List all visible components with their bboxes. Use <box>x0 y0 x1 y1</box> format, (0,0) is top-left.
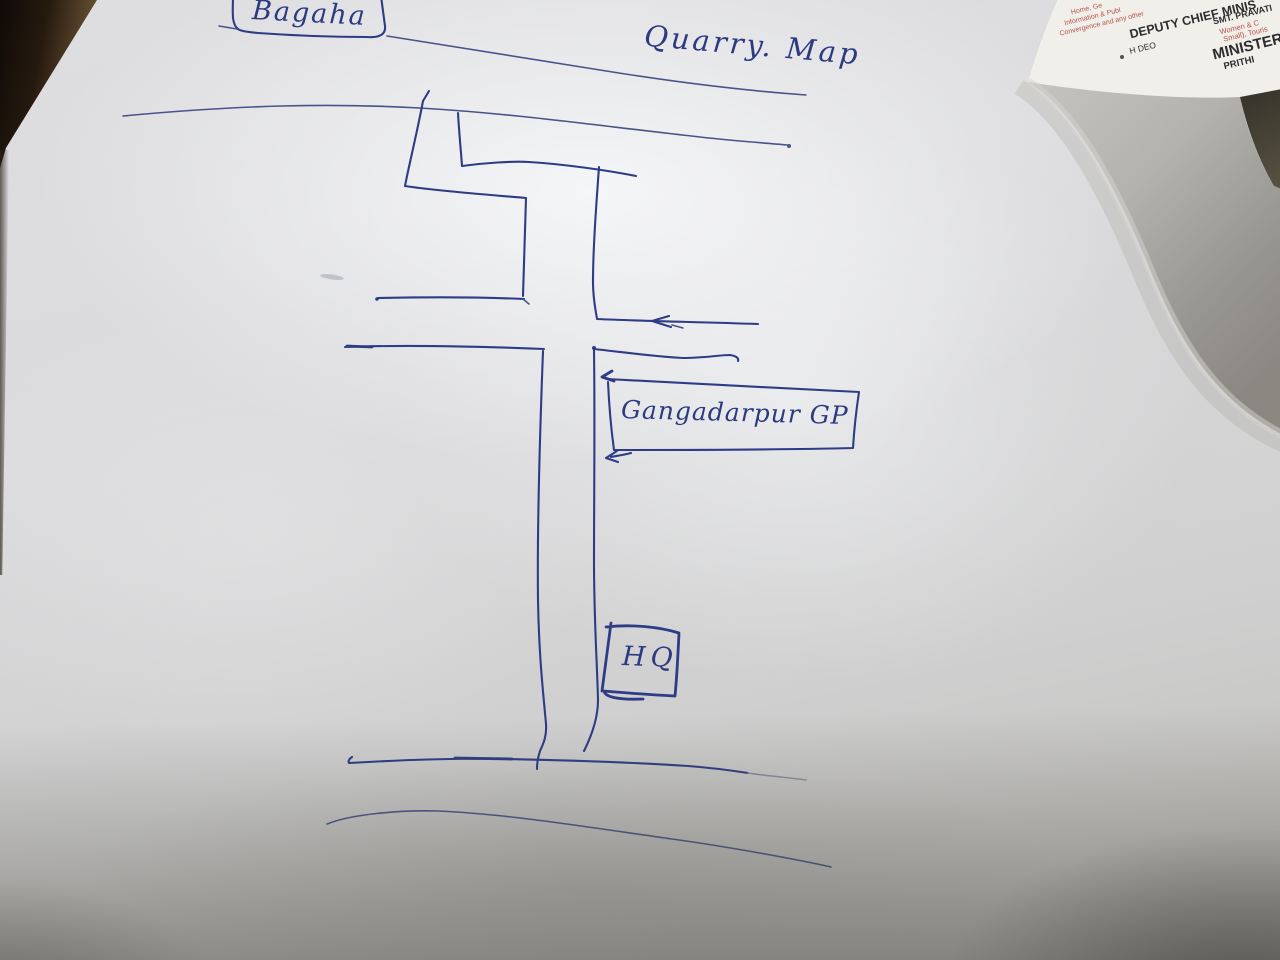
bottom-line-overdraw <box>455 758 512 759</box>
right-street-lower-line <box>594 349 738 361</box>
hq-label: HQ <box>621 641 678 674</box>
bagaha-box-overshoot <box>219 26 237 29</box>
ink-sketch <box>123 0 859 867</box>
upper-road-right-edge <box>593 167 758 324</box>
pencil-smudge <box>320 273 344 281</box>
pen-dot <box>375 297 379 301</box>
gangadarpur-gp-label: Gangadarpur GP <box>621 395 849 430</box>
pen-dot <box>787 144 791 148</box>
photo-hand-drawn-map: Home, Ge Information & Publ Convergence … <box>0 0 1280 960</box>
left-street-overdraw <box>347 346 372 347</box>
left-street-upper-line <box>378 297 524 299</box>
top-road-line <box>123 105 787 145</box>
gp-box-bottom-arrow <box>606 451 631 462</box>
bottom-line-fade <box>748 773 806 780</box>
bottom-road-line-1 <box>349 757 748 773</box>
road-right-edge <box>584 350 598 751</box>
left-street-lower-line <box>345 346 544 349</box>
upper-road-left-edge <box>458 113 636 176</box>
map-sketch-scene: Home, Ge Information & Publ Convergence … <box>0 0 1280 960</box>
zigzag-road-edge <box>405 91 526 296</box>
road-left-edge <box>537 351 546 769</box>
bottom-road-line-2 <box>327 811 831 867</box>
left-street-tick <box>523 299 529 304</box>
arrow-flick <box>672 325 683 328</box>
paper-speck <box>1120 55 1124 59</box>
